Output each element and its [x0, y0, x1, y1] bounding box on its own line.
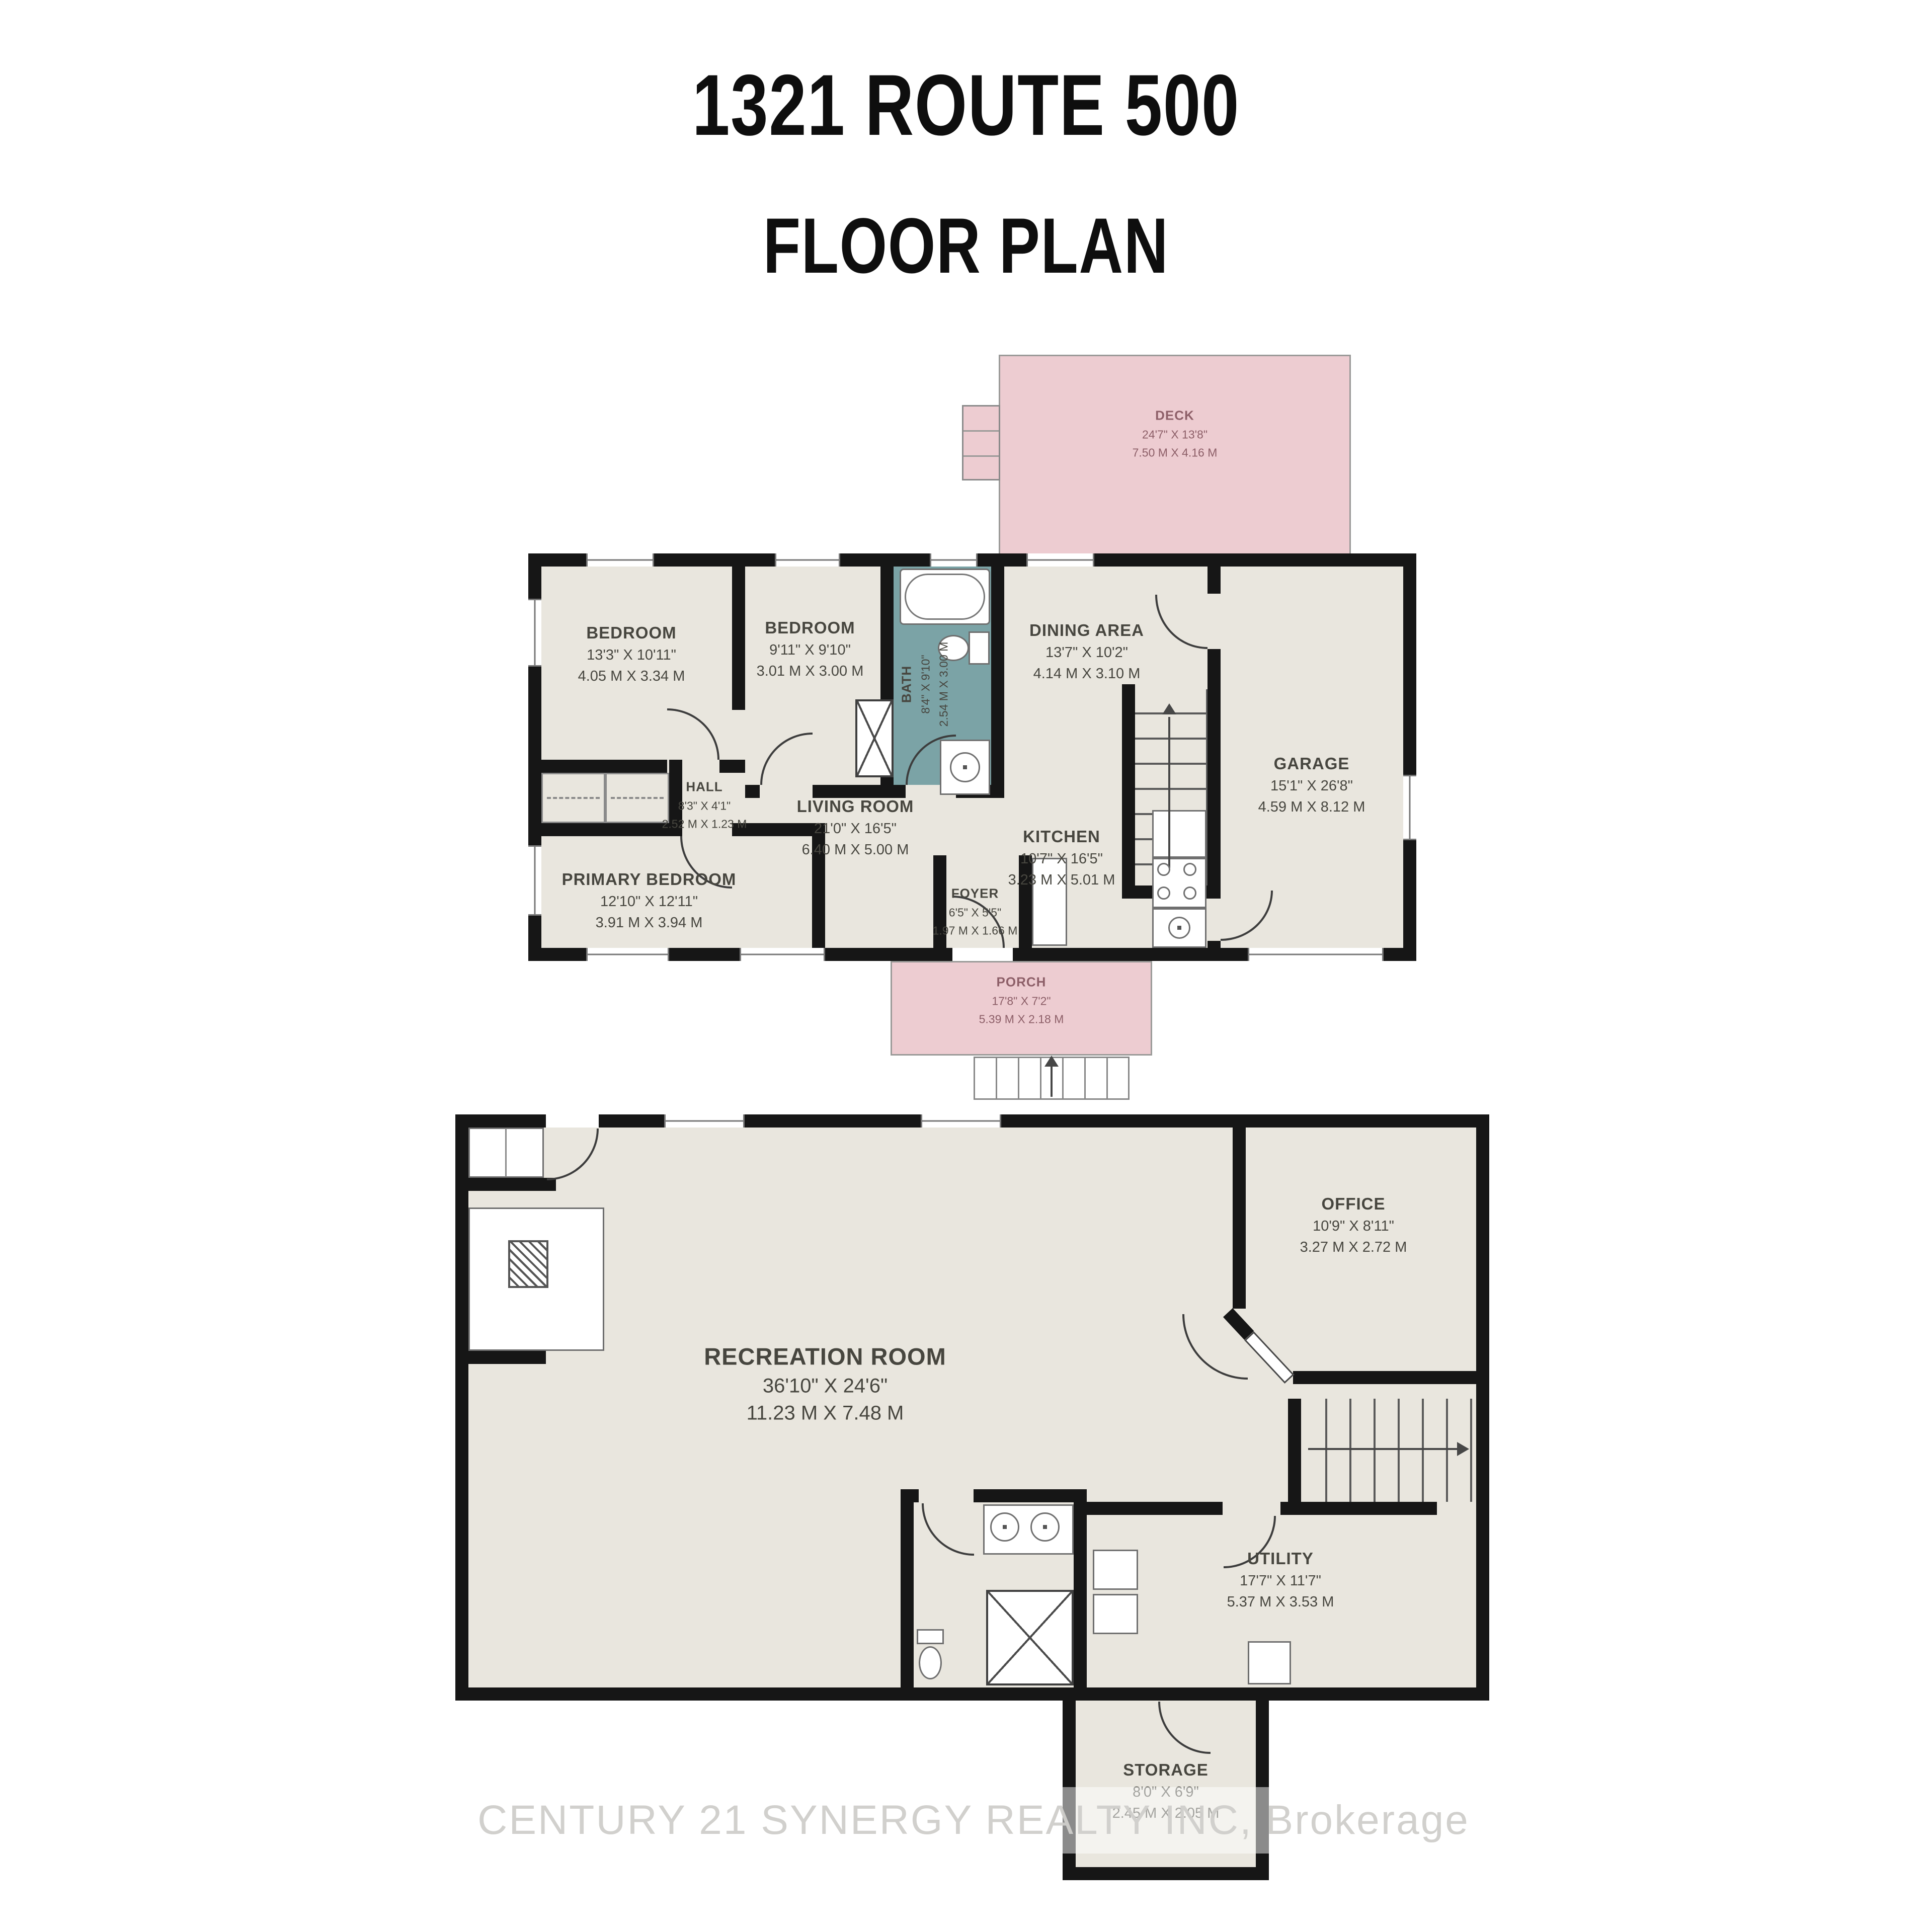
wall: [991, 567, 1004, 798]
room-dim-metric: 5.39 M X 2.18 M: [979, 1013, 1064, 1026]
room-dim-imperial: 10'7" X 16'5": [1020, 851, 1103, 867]
room-dim-metric: 2.52 M X 1.23 M: [662, 818, 747, 831]
wall: [1280, 1502, 1437, 1515]
stove-burner: [1183, 887, 1196, 900]
room-name: FOYER: [951, 886, 999, 902]
toilet-tank: [969, 631, 990, 665]
basement-entry-opening: [546, 1114, 599, 1128]
wall: [1233, 1128, 1246, 1309]
toilet-bowl: [919, 1646, 942, 1679]
wall: [1207, 567, 1221, 594]
window: [528, 845, 541, 916]
closet-rod: [611, 797, 664, 799]
deck-steps: [962, 405, 1000, 480]
room-dim-metric: 2.54 M X 3.00 M: [937, 642, 951, 727]
room-dim-imperial: 12'10" X 12'11": [600, 894, 698, 910]
room-name: BEDROOM: [765, 618, 855, 637]
room-name: BATH: [899, 666, 915, 703]
room-dim-metric: 4.14 M X 3.10 M: [1033, 666, 1141, 682]
wall: [880, 777, 894, 785]
toilet-tank: [917, 1629, 944, 1644]
page-title-address: 1321 ROUTE 500: [212, 55, 1719, 155]
room-name: PRIMARY BEDROOM: [562, 870, 737, 889]
room-label-bath: BATH 8'4" X 9'10" 2.54 M X 3.00 M: [899, 642, 951, 727]
room-name: PORCH: [997, 975, 1046, 990]
room-dim-imperial: 9'11" X 9'10": [769, 642, 851, 659]
kitchen-sink-drain: [1177, 926, 1181, 930]
room-label-bedroom1: BEDROOM 13'3" X 10'11" 4.05 M X 3.34 M: [578, 623, 685, 685]
closet-rod: [547, 797, 600, 799]
room-name: UTILITY: [1247, 1549, 1314, 1568]
stairs-arrow-line: [1308, 1448, 1459, 1450]
room-dim-metric: 3.01 M X 3.00 M: [757, 663, 864, 680]
wall: [719, 760, 745, 773]
wall: [541, 823, 679, 836]
wall: [1074, 1489, 1087, 1687]
room-dim-metric: 3.23 M X 5.01 M: [1008, 872, 1115, 889]
wall: [541, 760, 667, 773]
fridge: [1152, 810, 1206, 858]
stairs-arrow-line: [1168, 717, 1170, 868]
room-dim-imperial: 8'4" X 9'10": [919, 655, 933, 713]
garage-door: [1248, 948, 1384, 961]
room-name: DINING AREA: [1029, 621, 1144, 640]
room-name: LIVING ROOM: [797, 797, 914, 816]
utility-appliance: [1248, 1641, 1291, 1684]
wall: [745, 785, 760, 798]
stove-burner: [1157, 887, 1170, 900]
bath-sink-drain: [963, 765, 967, 769]
room-dim-metric: 3.91 M X 3.94 M: [596, 915, 703, 931]
wall: [1293, 1371, 1477, 1384]
window: [586, 553, 654, 567]
utility-appliance: [1093, 1550, 1138, 1590]
room-label-bedroom2: BEDROOM 9'11" X 9'10" 3.01 M X 3.00 M: [757, 618, 864, 680]
storage-door-opening: [1157, 1674, 1213, 1687]
stairs-to-main-floor: [1303, 1399, 1476, 1502]
shower: [986, 1590, 1074, 1685]
room-label-primary-bedroom: PRIMARY BEDROOM 12'10" X 12'11" 3.91 M X…: [562, 870, 737, 931]
room-name: STORAGE: [1123, 1760, 1209, 1780]
room-label-kitchen: KITCHEN 10'7" X 16'5" 3.23 M X 5.01 M: [1008, 827, 1115, 889]
room-dim-imperial: 10'9" X 8'11": [1313, 1218, 1394, 1235]
stairs-arrow-head: [1162, 703, 1176, 714]
floor-plan-sheet: 1321 ROUTE 500 FLOOR PLAN: [0, 0, 1932, 1932]
room-dim-metric: 7.50 M X 4.16 M: [1133, 446, 1218, 460]
wall: [901, 1489, 919, 1502]
patio-door: [1026, 553, 1094, 567]
window: [586, 948, 669, 961]
room-name: GARAGE: [1274, 754, 1350, 773]
room-name: BEDROOM: [586, 623, 676, 642]
room-dim-metric: 1.97 M X 1.66 M: [933, 924, 1018, 938]
room-dim-metric: 11.23 M X 7.48 M: [747, 1402, 904, 1425]
wall: [1207, 941, 1221, 948]
stove-burner: [1157, 863, 1170, 876]
window: [930, 553, 978, 567]
window: [1403, 775, 1416, 840]
room-label-hall: HALL 8'3" X 4'1" 2.52 M X 1.23 M: [662, 779, 747, 831]
room-dim-imperial: 13'3" X 10'11": [587, 647, 676, 664]
wall: [455, 1178, 556, 1191]
wall: [1087, 1502, 1223, 1515]
page-title-floor-plan: FLOOR PLAN: [212, 201, 1719, 291]
room-dim-imperial: 17'8" X 7'2": [992, 995, 1051, 1008]
porch-arrow-head: [1044, 1056, 1059, 1067]
brokerage-watermark: CENTURY 21 SYNERGY REALTY INC, Brokerage: [541, 1787, 1406, 1854]
linen-closet: [855, 699, 894, 777]
room-name: DECK: [1155, 408, 1194, 424]
room-dim-imperial: 6'5" X 5'5": [949, 906, 1001, 920]
sink-drain: [1043, 1525, 1047, 1529]
wall: [1207, 649, 1221, 891]
room-label-dining: DINING AREA 13'7" X 10'2" 4.14 M X 3.10 …: [1029, 621, 1144, 682]
room-label-deck: DECK 24'7" X 13'8" 7.50 M X 4.16 M: [1133, 408, 1218, 460]
room-label-garage: GARAGE 15'1" X 26'8" 4.59 M X 8.12 M: [1258, 754, 1365, 816]
wall: [1122, 684, 1135, 886]
wall: [1288, 1399, 1301, 1502]
bathtub-basin: [905, 574, 985, 620]
wall: [880, 567, 894, 699]
room-dim-imperial: 13'7" X 10'2": [1045, 645, 1128, 661]
sink-drain: [1003, 1525, 1007, 1529]
room-dim-imperial: 21'0" X 16'5": [814, 821, 897, 837]
room-dim-imperial: 15'1" X 26'8": [1270, 778, 1353, 794]
room-dim-imperial: 17'7" X 11'7": [1240, 1573, 1321, 1589]
room-label-porch: PORCH 17'8" X 7'2" 5.39 M X 2.18 M: [979, 975, 1064, 1026]
wall: [894, 785, 906, 798]
front-door-opening: [952, 948, 1013, 961]
window: [740, 948, 825, 961]
room-name: OFFICE: [1322, 1194, 1386, 1214]
room-dim-metric: 4.59 M X 8.12 M: [1258, 799, 1365, 816]
window: [921, 1114, 1001, 1128]
brokerage-watermark-text: CENTURY 21 SYNERGY REALTY INC, Brokerage: [477, 1797, 1470, 1844]
utility-appliance: [1093, 1594, 1138, 1634]
room-label-office: OFFICE 10'9" X 8'11" 3.27 M X 2.72 M: [1300, 1194, 1407, 1256]
window: [528, 599, 541, 667]
room-name: KITCHEN: [1023, 827, 1100, 846]
room-dim-metric: 3.27 M X 2.72 M: [1300, 1239, 1407, 1256]
room-dim-imperial: 36'10" X 24'6": [763, 1375, 888, 1398]
room-dim-metric: 4.05 M X 3.34 M: [578, 668, 685, 685]
closet: [605, 773, 669, 823]
cold-room-divider: [505, 1129, 507, 1177]
room-label-utility: UTILITY 17'7" X 11'7" 5.37 M X 3.53 M: [1227, 1549, 1334, 1611]
wall: [901, 1489, 914, 1687]
room-label-living: LIVING ROOM 21'0" X 16'5" 6.40 M X 5.00 …: [797, 797, 914, 858]
wall: [813, 785, 894, 798]
room-name: HALL: [686, 779, 722, 795]
wall: [732, 567, 745, 710]
wall: [455, 1351, 546, 1364]
chimney: [508, 1240, 548, 1288]
stairs-arrow-head: [1457, 1442, 1469, 1456]
room-label-recreation: RECREATION ROOM 36'10" X 24'6" 11.23 M X…: [704, 1343, 946, 1425]
room-label-foyer: FOYER 6'5" X 5'5" 1.97 M X 1.66 M: [933, 886, 1018, 938]
stove-burner: [1183, 863, 1196, 876]
room-dim-imperial: 24'7" X 13'8": [1142, 428, 1207, 442]
room-name: RECREATION ROOM: [704, 1343, 946, 1371]
room-dim-metric: 6.40 M X 5.00 M: [802, 842, 909, 858]
porch-arrow-line: [1051, 1065, 1053, 1097]
wall: [974, 1489, 1087, 1502]
window: [775, 553, 840, 567]
room-dim-metric: 5.37 M X 3.53 M: [1227, 1594, 1334, 1611]
room-dim-imperial: 8'3" X 4'1": [678, 799, 731, 813]
window: [664, 1114, 745, 1128]
closet: [541, 773, 605, 823]
